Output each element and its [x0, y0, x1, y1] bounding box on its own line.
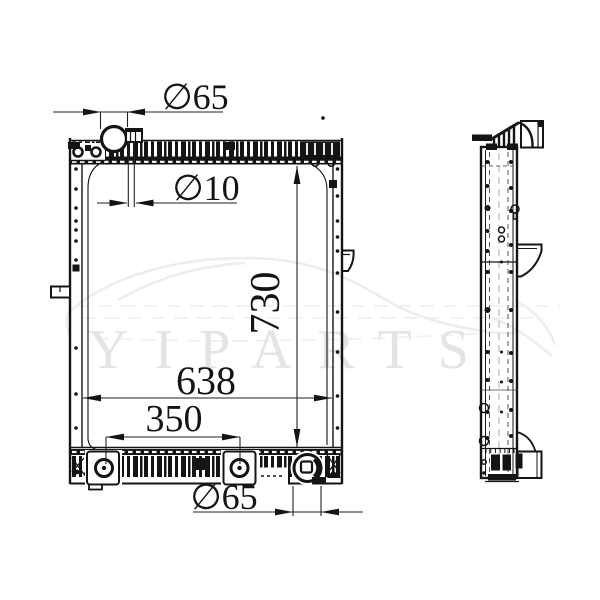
dim-label-core-width: 638: [176, 358, 236, 403]
dim-label-mounting-spacing: 350: [146, 398, 203, 440]
radiator-views: ∅65 ∅10 730 638 350 ∅65: [0, 0, 600, 600]
right-side-frame: [311, 138, 354, 484]
side-top-bracket: [472, 121, 543, 150]
left-side-frame: [51, 138, 99, 484]
radiator-technical-drawing: YIPARTS: [0, 0, 600, 600]
dim-label-overflow-tube: ∅10: [172, 168, 239, 208]
side-view: [472, 121, 543, 482]
dim-label-core-height: 730: [243, 272, 289, 335]
dim-label-outlet-od: ∅65: [190, 477, 257, 517]
dim-label-filler-neck-od: ∅65: [161, 77, 228, 117]
